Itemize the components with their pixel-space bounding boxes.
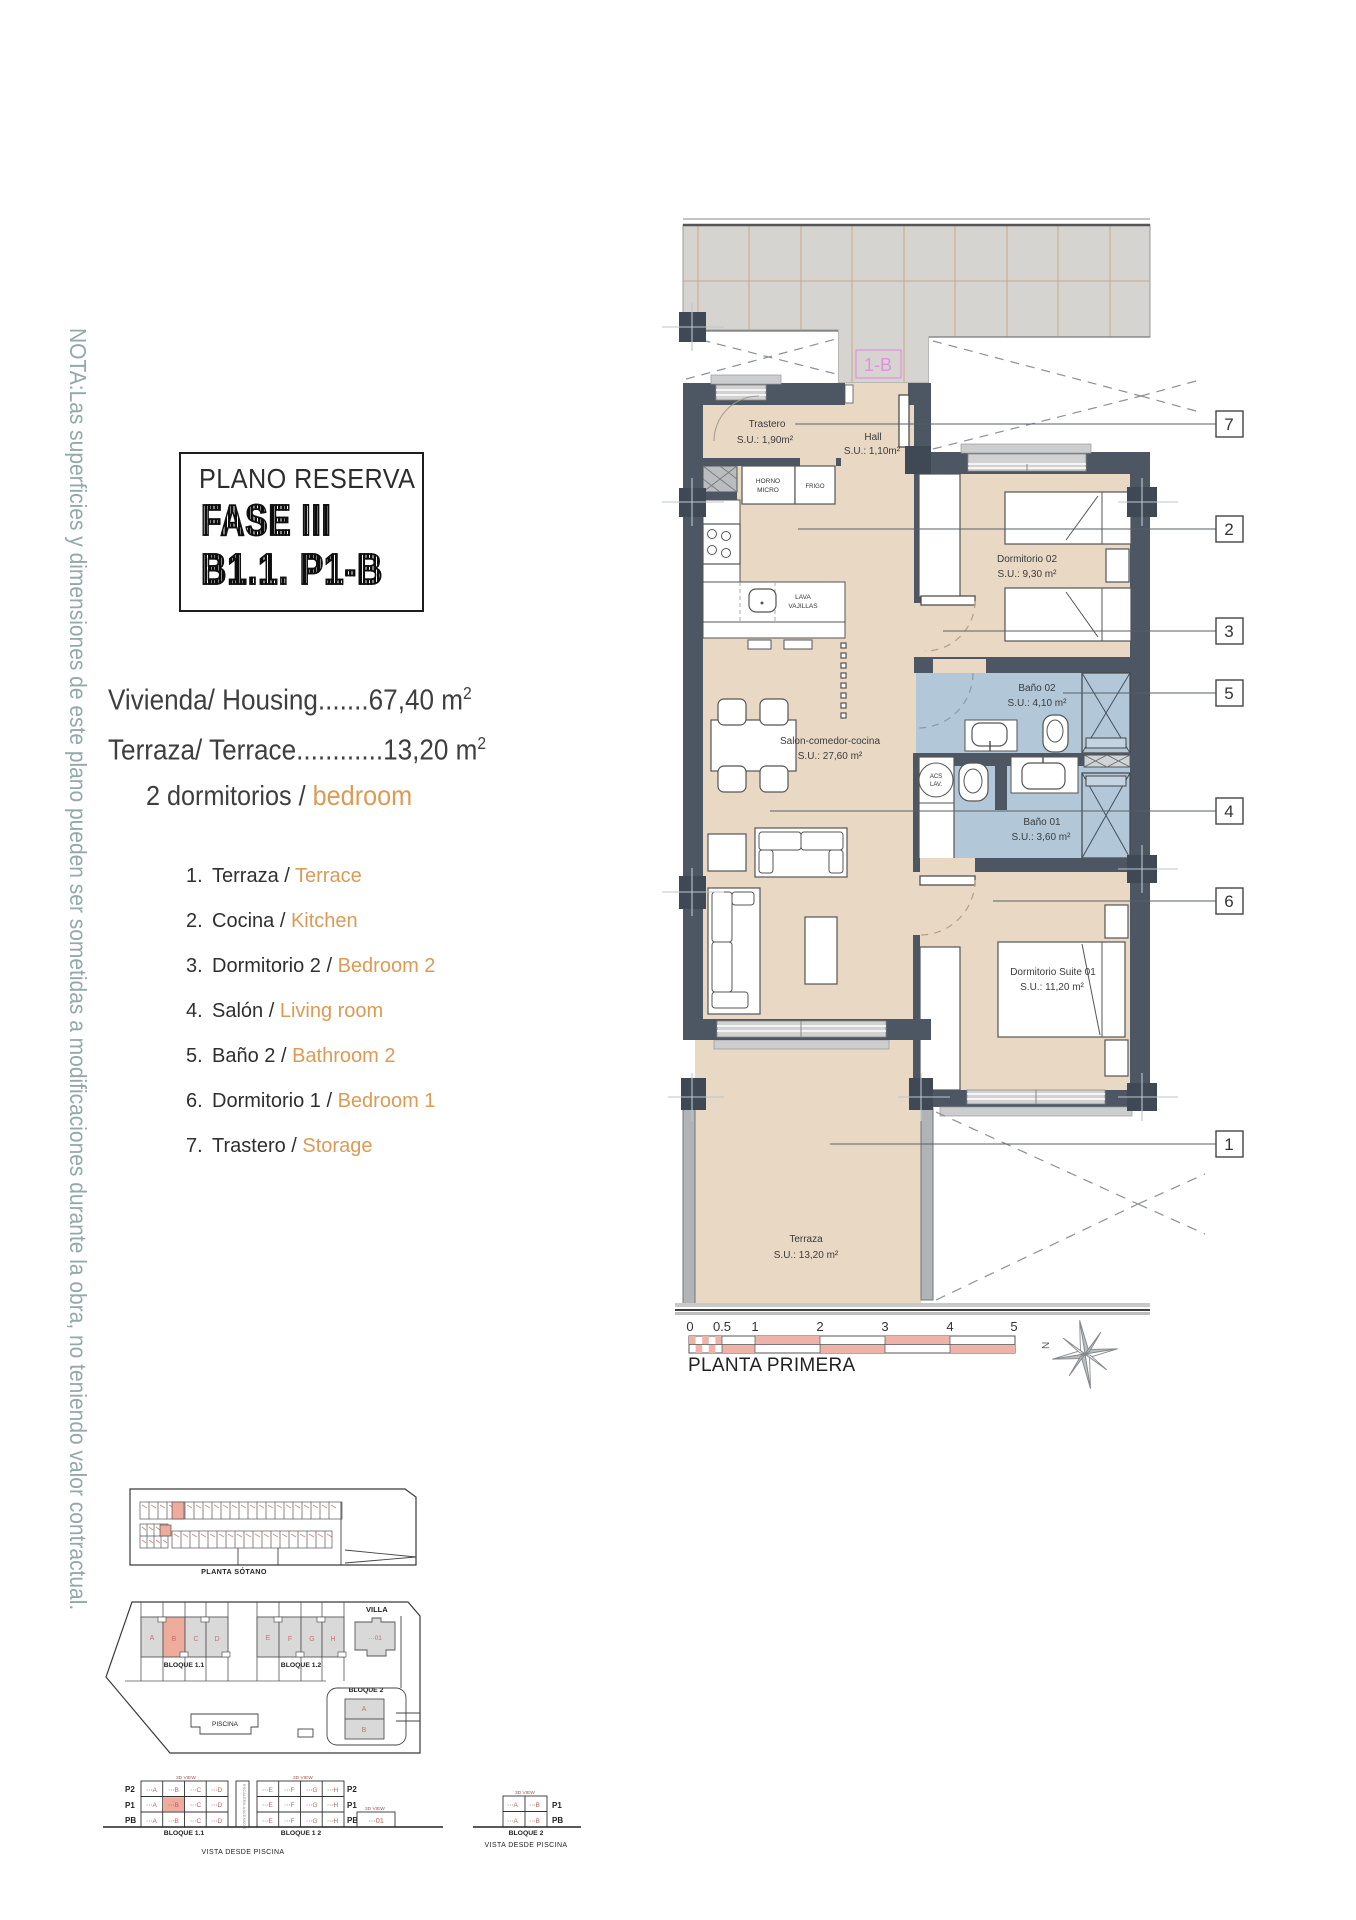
svg-text:A: A bbox=[362, 1706, 367, 1713]
svg-text:PLANTA PRIMERA: PLANTA PRIMERA bbox=[688, 1355, 856, 1376]
svg-text:4: 4 bbox=[1224, 802, 1233, 821]
svg-text:P2: P2 bbox=[125, 1785, 135, 1794]
svg-text:0.5: 0.5 bbox=[713, 1319, 731, 1334]
svg-text:3D VIEW: 3D VIEW bbox=[515, 1790, 535, 1796]
svg-text:VAJILLAS: VAJILLAS bbox=[788, 603, 818, 610]
svg-text:2: 2 bbox=[1224, 520, 1233, 539]
svg-text:F: F bbox=[288, 1636, 292, 1643]
svg-text:⋯D: ⋯D bbox=[211, 1818, 223, 1825]
svg-text:⋯B: ⋯B bbox=[529, 1802, 540, 1809]
svg-text:Salon-comedor-cocina: Salon-comedor-cocina bbox=[780, 736, 880, 747]
svg-text:0: 0 bbox=[686, 1319, 693, 1334]
svg-text:3: 3 bbox=[881, 1319, 888, 1334]
svg-text:PB: PB bbox=[552, 1816, 563, 1825]
svg-text:⋯01: ⋯01 bbox=[368, 1816, 384, 1825]
svg-text:Terraza: Terraza bbox=[789, 1234, 823, 1245]
svg-text:⋯B: ⋯B bbox=[168, 1818, 179, 1825]
svg-text:1: 1 bbox=[1224, 1135, 1233, 1154]
svg-text:P1: P1 bbox=[125, 1801, 135, 1810]
svg-text:S.U.: 27,60 m²: S.U.: 27,60 m² bbox=[798, 751, 863, 762]
svg-text:S.U.: 3,60 m²: S.U.: 3,60 m² bbox=[1012, 832, 1072, 843]
svg-text:2: 2 bbox=[816, 1319, 823, 1334]
svg-text:⋯F: ⋯F bbox=[284, 1787, 295, 1794]
svg-text:⋯E: ⋯E bbox=[262, 1787, 274, 1794]
svg-text:⋯G: ⋯G bbox=[306, 1787, 318, 1794]
svg-text:B: B bbox=[362, 1727, 367, 1734]
svg-text:Hall: Hall bbox=[864, 432, 881, 443]
svg-text:B: B bbox=[172, 1636, 177, 1643]
svg-text:BLOQUE 1.1: BLOQUE 1.1 bbox=[164, 1830, 205, 1837]
svg-text:6: 6 bbox=[1224, 892, 1233, 911]
svg-text:VISTA DESDE PISCINA: VISTA DESDE PISCINA bbox=[202, 1849, 285, 1856]
svg-text:⋯B: ⋯B bbox=[168, 1787, 179, 1794]
svg-text:⋯A: ⋯A bbox=[146, 1818, 158, 1825]
svg-text:FRIGO: FRIGO bbox=[806, 484, 825, 490]
svg-text:S.U.: 1,90m²: S.U.: 1,90m² bbox=[737, 435, 794, 446]
svg-text:E: E bbox=[266, 1635, 271, 1642]
svg-text:3D VIEW: 3D VIEW bbox=[176, 1775, 196, 1781]
svg-text:1: 1 bbox=[751, 1319, 758, 1334]
svg-text:S.U.: 1,10m²: S.U.: 1,10m² bbox=[844, 446, 901, 457]
svg-text:⋯A: ⋯A bbox=[507, 1818, 519, 1825]
svg-text:⋯A: ⋯A bbox=[146, 1787, 158, 1794]
svg-text:S.U.: 9,30 m²: S.U.: 9,30 m² bbox=[998, 569, 1058, 580]
svg-text:A: A bbox=[150, 1635, 155, 1642]
svg-text:⋯H: ⋯H bbox=[327, 1802, 339, 1809]
svg-text:⋯B: ⋯B bbox=[168, 1802, 179, 1809]
svg-text:ESCALERA-ASCENSOR: ESCALERA-ASCENSOR bbox=[242, 1784, 247, 1829]
svg-text:MICRO: MICRO bbox=[757, 487, 779, 494]
svg-text:⋯F: ⋯F bbox=[284, 1818, 295, 1825]
svg-text:PISCINA: PISCINA bbox=[212, 1721, 239, 1728]
svg-text:S.U.: 13,20 m²: S.U.: 13,20 m² bbox=[774, 1250, 839, 1261]
svg-text:HORNO: HORNO bbox=[756, 478, 780, 485]
svg-text:⋯E: ⋯E bbox=[262, 1818, 274, 1825]
svg-text:5: 5 bbox=[1010, 1319, 1017, 1334]
svg-text:⋯E: ⋯E bbox=[262, 1802, 274, 1809]
svg-text:BLOQUE 1.2: BLOQUE 1.2 bbox=[281, 1662, 322, 1669]
svg-text:Trastero: Trastero bbox=[749, 419, 786, 430]
svg-text:LAVA: LAVA bbox=[795, 594, 811, 601]
svg-text:3D VIEW: 3D VIEW bbox=[293, 1775, 313, 1781]
svg-text:⋯C: ⋯C bbox=[190, 1802, 202, 1809]
svg-text:⋯G: ⋯G bbox=[306, 1802, 318, 1809]
svg-text:⋯B: ⋯B bbox=[529, 1818, 540, 1825]
svg-text:P1: P1 bbox=[552, 1801, 562, 1810]
svg-text:Baño 02: Baño 02 bbox=[1018, 683, 1056, 694]
svg-text:N: N bbox=[1041, 1342, 1052, 1349]
svg-text:Dormitorio Suite 01: Dormitorio Suite 01 bbox=[1010, 967, 1096, 978]
svg-text:PLANTA SÓTANO: PLANTA SÓTANO bbox=[201, 1567, 267, 1576]
svg-text:Baño 01: Baño 01 bbox=[1023, 817, 1061, 828]
svg-text:⋯A: ⋯A bbox=[146, 1802, 158, 1809]
svg-text:H: H bbox=[330, 1636, 335, 1643]
svg-text:4: 4 bbox=[946, 1319, 953, 1334]
svg-text:ACS: ACS bbox=[930, 774, 942, 780]
svg-text:⋯C: ⋯C bbox=[190, 1818, 202, 1825]
svg-text:C: C bbox=[193, 1636, 198, 1643]
svg-text:⋯C: ⋯C bbox=[190, 1787, 202, 1794]
svg-text:P1: P1 bbox=[347, 1801, 357, 1810]
svg-text:BLOQUE 2: BLOQUE 2 bbox=[509, 1830, 544, 1837]
svg-text:1-B: 1-B bbox=[864, 355, 892, 375]
svg-text:⋯D: ⋯D bbox=[211, 1802, 223, 1809]
svg-text:VISTA DESDE PISCINA: VISTA DESDE PISCINA bbox=[485, 1842, 568, 1849]
svg-text:···01: ···01 bbox=[368, 1635, 382, 1642]
svg-text:⋯D: ⋯D bbox=[211, 1787, 223, 1794]
svg-text:Dormitorio 02: Dormitorio 02 bbox=[997, 554, 1057, 565]
svg-text:BLOQUE 1 2: BLOQUE 1 2 bbox=[281, 1830, 322, 1837]
svg-text:LAV.: LAV. bbox=[930, 782, 942, 788]
svg-text:⋯F: ⋯F bbox=[284, 1802, 295, 1809]
svg-text:3D VIEW: 3D VIEW bbox=[365, 1806, 385, 1812]
svg-text:5: 5 bbox=[1224, 684, 1233, 703]
svg-text:⋯A: ⋯A bbox=[507, 1802, 519, 1809]
svg-text:S.U.: 11,20 m²: S.U.: 11,20 m² bbox=[1020, 982, 1084, 993]
svg-text:⋯G: ⋯G bbox=[306, 1818, 318, 1825]
svg-text:VILLA: VILLA bbox=[366, 1605, 388, 1614]
svg-text:3: 3 bbox=[1224, 622, 1233, 641]
svg-text:⋯H: ⋯H bbox=[327, 1787, 339, 1794]
svg-text:7: 7 bbox=[1224, 415, 1233, 434]
svg-text:PB: PB bbox=[125, 1816, 136, 1825]
svg-text:P2: P2 bbox=[347, 1785, 357, 1794]
svg-text:S.U.: 4,10 m²: S.U.: 4,10 m² bbox=[1008, 698, 1068, 709]
svg-text:D: D bbox=[214, 1636, 219, 1643]
svg-text:G: G bbox=[309, 1636, 314, 1643]
svg-text:BLOQUE 1.1: BLOQUE 1.1 bbox=[164, 1662, 205, 1669]
svg-text:⋯H: ⋯H bbox=[327, 1818, 339, 1825]
